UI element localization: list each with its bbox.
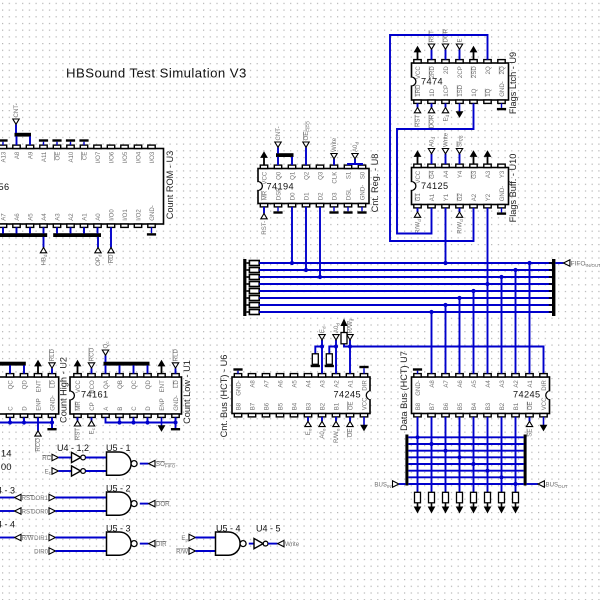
svg-text:QC: QC [131,380,138,390]
svg-text:I/O1: I/O1 [122,209,129,221]
svg-text:2Q: 2Q [499,66,506,74]
svg-text:A4: A4 [41,213,48,221]
svg-text:A6: A6 [457,380,464,388]
svg-text:A11: A11 [41,151,48,162]
svg-text:CLK: CLK [331,172,338,184]
svg-text:Count High - U2: Count High - U2 [59,357,69,423]
svg-text:RST: RST [415,115,422,127]
svg-text:A7: A7 [443,380,450,388]
svg-text:B3: B3 [305,402,312,410]
svg-text:GND-: GND- [149,205,156,221]
svg-text:I/O6: I/O6 [108,151,115,163]
svg-text:GND-: GND- [235,380,242,396]
svg-text:1Q: 1Q [485,88,492,96]
svg-text:MR: MR [261,190,268,200]
svg-text:Y2: Y2 [485,193,492,201]
svg-text:LD: LD [49,380,56,388]
svg-text:74194: 74194 [267,182,295,192]
svg-text:QD: QD [21,380,28,390]
svg-text:GND-: GND- [499,81,506,97]
svg-text:Q1: Q1 [289,171,296,180]
svg-text:DIR1: DIR1 [34,535,48,542]
svg-text:A13: A13 [0,151,7,162]
svg-text:GND-: GND- [415,380,422,396]
svg-text:QA: QA [103,379,110,389]
svg-text:A2: A2 [333,380,340,388]
svg-text:A5: A5 [471,380,478,388]
svg-text:A5: A5 [27,213,34,221]
svg-text:B2: B2 [499,402,506,410]
svg-text:MR: MR [75,401,82,411]
svg-text:B7: B7 [249,402,256,410]
svg-text:G2: G2 [457,193,464,202]
svg-text:DOR: DOR [156,501,170,508]
svg-text:27C256: 27C256 [0,182,10,192]
svg-text:GND-: GND- [359,185,366,201]
svg-text:RLD: RLD [173,349,180,362]
svg-text:S1: S1 [345,171,352,179]
svg-text:C: C [131,406,138,411]
svg-text:A8: A8 [429,380,436,388]
svg-text:A3: A3 [499,380,506,388]
svg-text:DIR: DIR [156,541,167,548]
svg-text:1Q: 1Q [471,88,478,96]
svg-text:Cnt. Reg. - U8: Cnt. Reg. - U8 [370,154,380,213]
svg-text:RST-: RST- [261,221,268,235]
svg-text:A6: A6 [277,380,284,388]
svg-text:I/O2: I/O2 [135,209,142,221]
svg-text:D: D [21,406,28,411]
svg-text:B8: B8 [235,402,242,410]
svg-text:RC: RC [42,455,51,462]
svg-text:Write: Write [443,132,450,147]
svg-text:Q3: Q3 [317,171,324,180]
svg-text:I/O0: I/O0 [108,209,115,221]
svg-text:1CP: 1CP [443,85,450,97]
svg-text:A1: A1 [429,193,436,201]
svg-text:2D: 2D [443,66,450,74]
svg-text:I/O3: I/O3 [149,151,156,163]
svg-text:2Q: 2Q [485,66,492,74]
svg-text:OE: OE [54,152,61,161]
svg-text:A8: A8 [14,151,21,159]
svg-text:Data Bus (HCT) U7: Data Bus (HCT) U7 [399,351,409,431]
svg-text:A4: A4 [443,170,450,178]
svg-text:A7: A7 [0,213,7,221]
svg-text:D: D [145,406,152,411]
svg-text:G4: G4 [429,170,436,179]
svg-text:CNT-: CNT- [275,126,282,140]
svg-text:GND-: GND- [49,395,56,411]
svg-text:DIR: DIR [361,380,368,391]
svg-text:S0: S0 [359,171,366,179]
svg-text:A8: A8 [249,380,256,388]
svg-text:2SD: 2SD [471,66,478,78]
svg-text:U4 - 5: U4 - 5 [256,524,281,534]
svg-text:A1: A1 [527,380,534,388]
svg-text:A2: A2 [68,213,75,221]
svg-text:Flags Buff. - U10: Flags Buff. - U10 [508,154,518,223]
svg-text:Y4: Y4 [457,170,464,178]
svg-text:R/W: R/W [176,549,188,556]
svg-text:1D: 1D [429,88,436,96]
svg-text:RCO: RCO [89,347,96,361]
svg-text:B1: B1 [513,402,520,410]
svg-text:OE: OE [527,401,534,410]
svg-text:14: 14 [1,449,12,460]
svg-text:RST: RST [75,428,82,440]
svg-text:Y3: Y3 [499,170,506,178]
svg-text:CE: CE [81,152,88,160]
svg-text:RD: RD [108,254,115,263]
svg-text:LD: LD [173,380,180,388]
svg-text:RST: RST [429,30,436,42]
svg-text:A3: A3 [54,213,61,221]
svg-text:GND-: GND- [499,186,506,202]
svg-text:1SD: 1SD [457,84,464,96]
svg-text:B2: B2 [319,402,326,410]
svg-text:A2: A2 [513,380,520,388]
svg-text:D3: D3 [331,192,338,200]
svg-text:A10: A10 [68,151,75,162]
svg-text:74245: 74245 [333,390,361,400]
svg-text:A5: A5 [291,380,298,388]
svg-text:R/W: R/W [22,535,34,542]
svg-text:G3: G3 [471,170,478,179]
svg-text:B6: B6 [443,402,450,410]
svg-text:DIR0: DIR0 [34,549,48,556]
svg-text:DSL: DSL [345,188,352,200]
svg-text:Write: Write [285,541,300,548]
svg-text:74161: 74161 [81,390,109,400]
svg-text:B5: B5 [457,402,464,410]
svg-text:RST: RST [22,495,34,502]
svg-text:D1: D1 [303,192,310,200]
svg-text:A4: A4 [305,380,312,388]
svg-text:A3: A3 [319,380,326,388]
svg-text:GND-: GND- [173,395,180,411]
svg-text:B7: B7 [429,402,436,410]
svg-text:C: C [7,406,14,411]
svg-text:CP: CP [89,402,96,410]
svg-text:A9: A9 [27,151,34,159]
svg-text:Y1: Y1 [443,193,450,201]
svg-text:RST: RST [22,509,34,516]
svg-text:VCC: VCC [361,397,368,410]
svg-text:A2: A2 [471,193,478,201]
svg-text:QB: QB [117,380,124,389]
svg-text:SE: SE [527,429,534,437]
svg-text:A0: A0 [95,213,102,221]
svg-text:4 - 3: 4 - 3 [0,486,15,496]
svg-text:B5: B5 [277,402,284,410]
svg-text:B3: B3 [485,402,492,410]
svg-text:ENT: ENT [159,380,166,392]
svg-text:Write: Write [331,137,338,152]
svg-text:B4: B4 [471,402,478,410]
svg-text:G1: G1 [415,193,422,202]
svg-text:DOR: DOR [429,114,436,128]
svg-text:DIR: DIR [541,380,548,391]
svg-text:I/O7: I/O7 [95,151,102,163]
svg-text:U4 - 1,2: U4 - 1,2 [57,443,89,453]
svg-text:A3: A3 [485,170,492,178]
svg-text:B8: B8 [415,402,422,410]
svg-text:HBSound Test Simulation V3: HBSound Test Simulation V3 [66,66,247,81]
svg-text:CNT-: CNT- [13,103,20,117]
svg-text:A4: A4 [485,380,492,388]
svg-text:74245: 74245 [513,390,541,400]
svg-text:Count Low - U1: Count Low - U1 [182,360,192,424]
svg-text:74125: 74125 [421,181,449,191]
svg-text:A1: A1 [81,213,88,221]
svg-text:A1: A1 [347,380,354,388]
svg-text:A6: A6 [14,213,21,221]
svg-text:Cnt. Bus (HCT) - U6: Cnt. Bus (HCT) - U6 [219,355,229,438]
svg-text:RLD: RLD [49,349,56,362]
svg-text:Q0: Q0 [275,171,282,180]
svg-text:I/O4: I/O4 [135,151,142,163]
svg-text:00: 00 [1,462,12,473]
svg-text:B6: B6 [263,402,270,410]
svg-text:A7: A7 [263,380,270,388]
svg-text:B1: B1 [333,402,340,410]
svg-text:D2: D2 [317,192,324,200]
svg-text:RCO: RCO [35,438,42,452]
svg-text:ENP: ENP [35,398,42,411]
svg-text:I/O5: I/O5 [122,151,129,163]
svg-text:E: E [457,38,464,42]
svg-text:OE: OE [347,401,354,410]
svg-text:Q2: Q2 [303,171,310,180]
svg-text:D0: D0 [289,192,296,200]
svg-text:QD: QD [145,380,152,390]
svg-text:Flags Ltch - U9: Flags Ltch - U9 [508,52,518,114]
svg-text:OE: OE [347,429,354,438]
svg-text:ENT: ENT [35,380,42,392]
svg-text:2CP: 2CP [457,66,464,78]
svg-text:QC: QC [7,380,14,390]
svg-text:7474: 7474 [421,77,443,87]
svg-text:VCC: VCC [541,397,548,410]
svg-text:4 - 4: 4 - 4 [0,520,15,530]
svg-text:Count ROM - U3: Count ROM - U3 [165,151,175,219]
svg-text:ENP: ENP [159,398,166,411]
svg-text:B: B [117,407,124,411]
svg-text:B4: B4 [291,402,298,410]
